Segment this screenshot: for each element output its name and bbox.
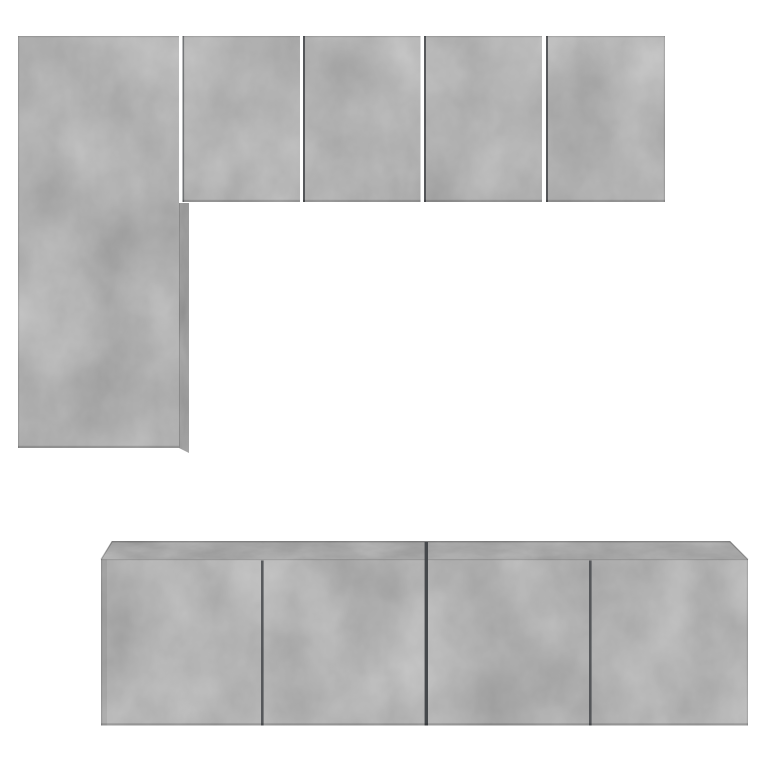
upper-cabinet-4: [546, 36, 665, 202]
bottom-wall-unit-group: [101, 541, 748, 726]
upper-cabinet-2: [303, 36, 421, 202]
tall-cabinet-corner-edge: [179, 203, 180, 448]
tall-cabinet: [18, 36, 189, 453]
upper-cabinet-4-left-seam: [546, 36, 548, 202]
bench-left-edge: [101, 560, 102, 726]
bench-bottom-shadow: [101, 723, 748, 725]
upper-cabinet-3-bottom-shadow: [424, 200, 542, 202]
tall-cabinet-left-edge: [18, 36, 19, 448]
bench-cabinet-1-door-seam: [261, 561, 264, 726]
bench-right-edge: [747, 560, 748, 726]
upper-cabinet-4-door: [546, 36, 665, 202]
upper-cabinet-3-door: [424, 36, 542, 202]
tall-cabinet-front-panel: [18, 36, 179, 448]
bench-top-front-edge: [101, 559, 748, 560]
tall-cabinet-top-edge: [18, 36, 179, 37]
bench-cabinet-2-door-seam: [589, 561, 592, 726]
upper-cabinet-1-bottom-shadow: [183, 200, 301, 202]
upper-cabinet-3: [424, 36, 542, 202]
upper-cabinet-4-right-edge: [664, 36, 665, 202]
upper-cabinet-2-bottom-shadow: [303, 200, 421, 202]
tall-cabinet-side-panel: [179, 203, 189, 453]
upper-cabinet-1-top-edge: [183, 36, 301, 37]
product-photo: [0, 0, 767, 767]
tall-cabinet-bottom-shadow: [18, 446, 179, 448]
upper-cabinet-3-top-edge: [424, 36, 542, 37]
upper-cabinet-2-left-seam: [303, 36, 305, 202]
upper-cabinet-3-left-seam: [424, 36, 426, 202]
bench-cabinet-2-front: [428, 560, 748, 726]
upper-cabinet-4-top-edge: [546, 36, 665, 37]
furniture-render: [0, 0, 767, 767]
bench-top-panel: [101, 541, 748, 560]
upper-cabinet-4-bottom-shadow: [546, 200, 665, 202]
bench-cabinet-divider-seam: [425, 542, 428, 726]
upper-cabinet-1-left-seam: [183, 36, 185, 202]
upper-cabinet-2-top-edge: [303, 36, 421, 37]
upper-cabinet-1-door: [183, 36, 301, 202]
upper-cabinet-2-door: [303, 36, 421, 202]
upper-cabinet-1: [183, 36, 301, 202]
